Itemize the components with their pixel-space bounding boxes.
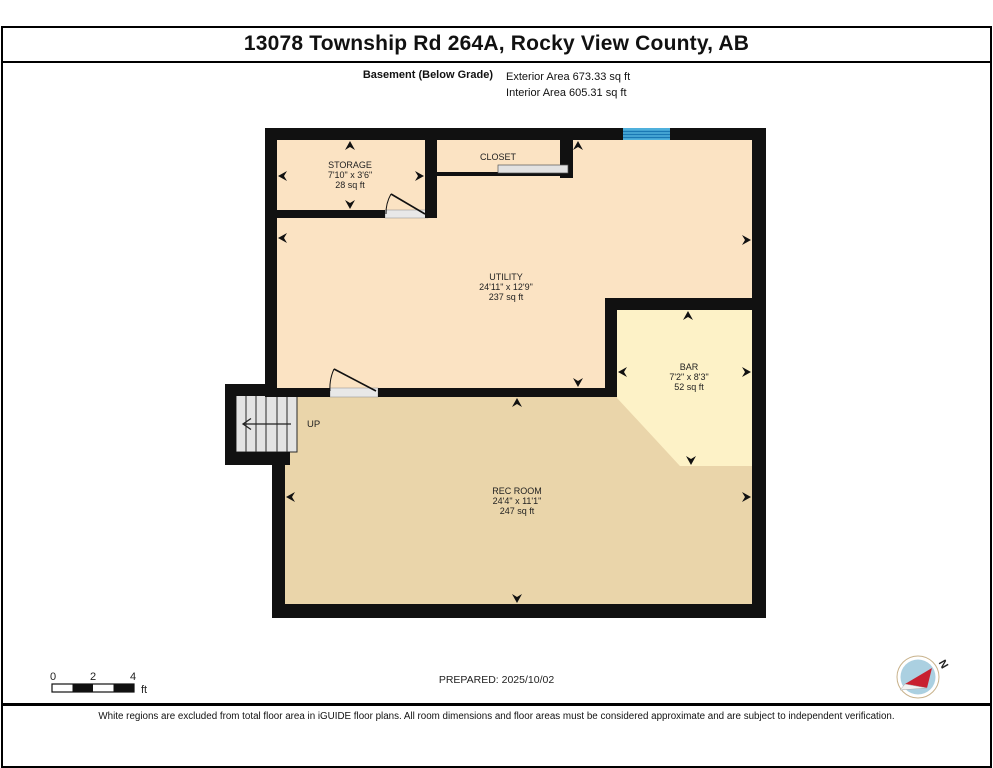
room-label-utility: UTILITY xyxy=(489,272,523,282)
wall-storage-right xyxy=(425,140,437,218)
north-label: N xyxy=(936,658,950,671)
disclaimer-text: White regions are excluded from total fl… xyxy=(0,711,993,722)
room-area-utility: 237 sq ft xyxy=(489,292,524,302)
room-label-storage: STORAGE xyxy=(328,160,372,170)
room-label-closet: CLOSET xyxy=(480,152,517,162)
room-dims-rec-room: 24'4" x 11'1" xyxy=(493,496,542,506)
prepared-date: PREPARED: 2025/10/02 xyxy=(0,674,993,686)
wall-bar-top xyxy=(605,298,752,310)
room-label-bar: BAR xyxy=(680,362,699,372)
footer-divider xyxy=(2,703,991,706)
wall-left-upper xyxy=(265,128,277,397)
floorplan-drawing: STORAGE 7'10" x 3'6" 28 sq ft CLOSET UTI… xyxy=(0,0,993,768)
wall-storage-bottom xyxy=(265,210,385,218)
room-label-rec-room: REC ROOM xyxy=(492,486,542,496)
wall-rec-left xyxy=(272,452,285,618)
closet-sliding-door xyxy=(498,165,568,173)
floorplan-page: 13078 Township Rd 264A, Rocky View Count… xyxy=(0,0,993,768)
staircase xyxy=(236,395,297,452)
room-area-bar: 52 sq ft xyxy=(674,382,704,392)
stairs-up-label: UP xyxy=(307,419,320,430)
door-threshold-utility xyxy=(330,388,378,397)
wall-stair-bottom xyxy=(225,452,290,465)
wall-mid-left-stub xyxy=(277,388,330,397)
room-dims-utility: 24'11" x 12'9" xyxy=(479,282,533,292)
wall-bottom xyxy=(272,604,766,618)
window xyxy=(623,128,670,140)
wall-right xyxy=(752,128,766,618)
room-dims-storage: 7'10" x 3'6" xyxy=(328,170,372,180)
wall-mid-main xyxy=(378,388,617,397)
room-dims-bar: 7'2" x 8'3" xyxy=(669,372,708,382)
room-area-rec-room: 247 sq ft xyxy=(500,506,535,516)
wall-top xyxy=(265,128,766,140)
wall-bar-left xyxy=(605,298,617,397)
room-area-storage: 28 sq ft xyxy=(335,180,365,190)
